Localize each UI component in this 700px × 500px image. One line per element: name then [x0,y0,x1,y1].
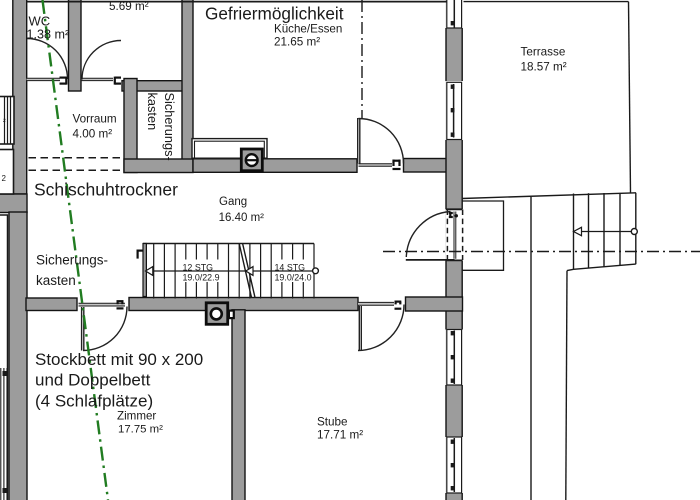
svg-text:²: ² [3,117,6,126]
svg-text:16.40 m²: 16.40 m² [219,212,265,224]
svg-text:1.38 m²: 1.38 m² [27,28,70,42]
svg-text:21.65 m²: 21.65 m² [274,36,320,49]
svg-text:Terrasse: Terrasse [521,46,566,59]
svg-text:(4 Schlafplätze): (4 Schlafplätze) [35,392,153,411]
svg-text:18.57 m²: 18.57 m² [521,61,567,74]
svg-text:Küche/Essen: Küche/Essen [274,23,342,36]
svg-text:kasten: kasten [145,93,160,131]
svg-text:2: 2 [2,174,7,183]
svg-text:Zimmer: Zimmer [117,410,156,423]
svg-text:4.00 m²: 4.00 m² [73,127,113,140]
svg-text:Sicherungs-: Sicherungs- [162,93,177,161]
svg-text:Schischuhtrockner: Schischuhtrockner [34,180,178,200]
svg-text:kasten: kasten [36,273,76,288]
svg-text:Gang: Gang [219,196,247,208]
svg-text:17.75 m²: 17.75 m² [118,424,163,436]
svg-text:Vorraum: Vorraum [73,112,117,125]
svg-text:5.69 m²: 5.69 m² [109,0,149,13]
svg-text:14 STG: 14 STG [275,263,306,273]
svg-text:12 STG: 12 STG [183,263,214,273]
svg-text:Gefriermöglichkeit: Gefriermöglichkeit [205,3,344,23]
svg-text:19.0/22.9: 19.0/22.9 [183,273,220,283]
svg-text:Stockbett mit 90 x 200: Stockbett mit 90 x 200 [35,350,203,369]
svg-text:19.0/24.0: 19.0/24.0 [275,273,312,283]
svg-text:WC: WC [29,14,51,29]
svg-text:und Doppelbett: und Doppelbett [35,371,151,390]
svg-text:Stube: Stube [317,416,348,429]
svg-text:17.71 m²: 17.71 m² [317,429,363,442]
svg-text:Sicherungs-: Sicherungs- [36,253,108,268]
